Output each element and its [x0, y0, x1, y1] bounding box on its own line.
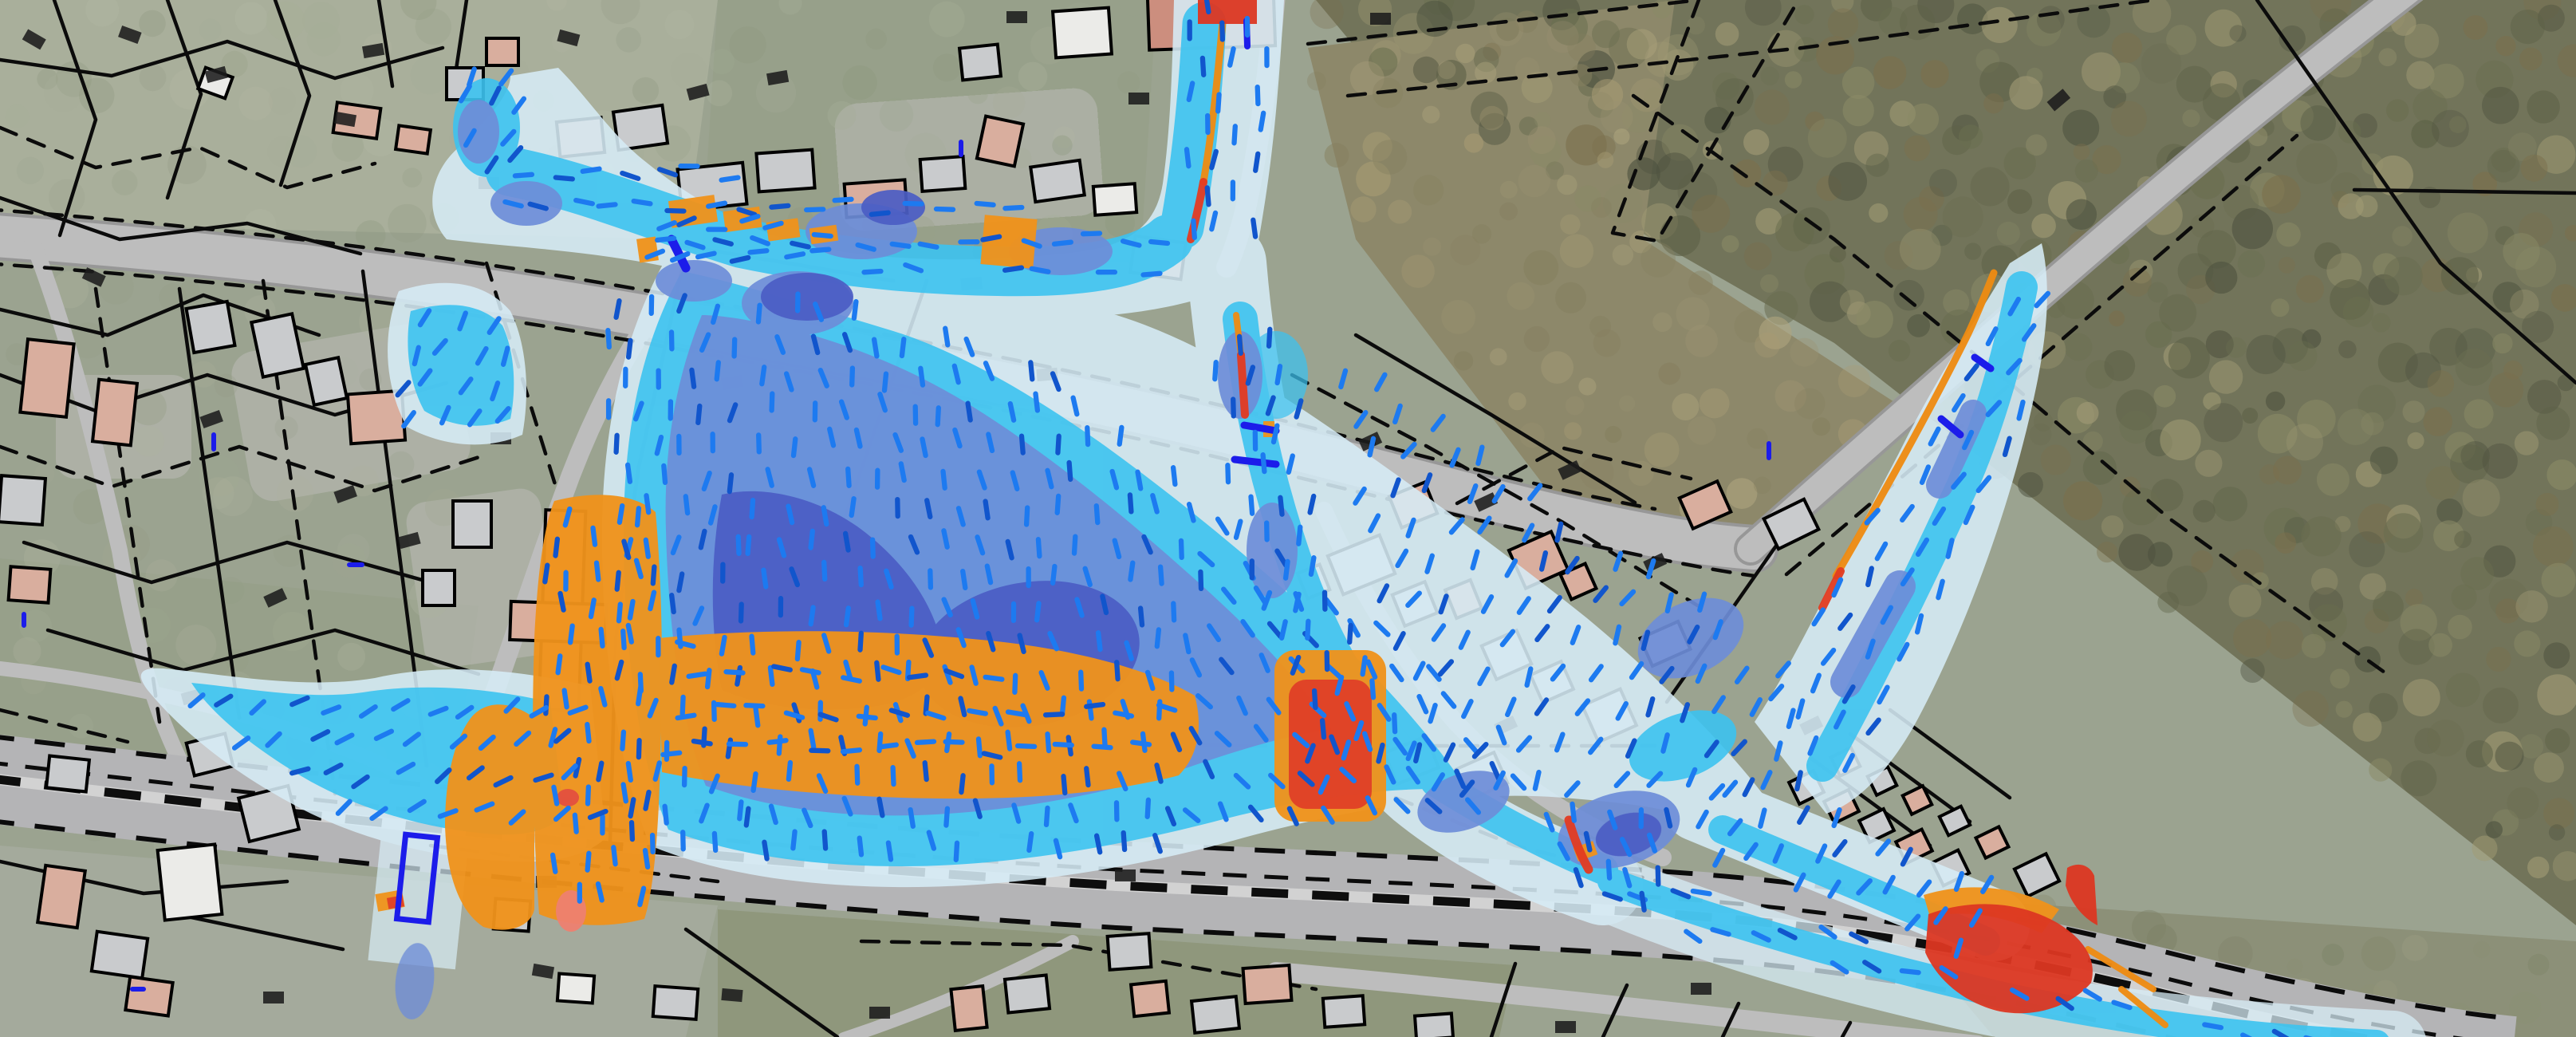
building — [9, 566, 51, 602]
hazard-red-retention-core — [1289, 680, 1372, 809]
building — [920, 156, 966, 191]
building — [158, 844, 223, 920]
building — [453, 501, 491, 547]
building — [959, 45, 1001, 81]
building — [756, 150, 814, 192]
map-canvas[interactable] — [0, 0, 2576, 1037]
building — [1093, 183, 1136, 215]
building — [951, 986, 987, 1031]
building — [125, 976, 172, 1015]
building — [977, 116, 1023, 167]
building — [20, 339, 73, 417]
building — [37, 865, 85, 928]
map-viewport[interactable] — [0, 0, 2576, 1037]
building — [423, 570, 455, 605]
building — [1053, 8, 1112, 58]
building — [557, 974, 594, 1003]
building — [1415, 1013, 1453, 1037]
building — [653, 986, 699, 1019]
building — [187, 302, 235, 353]
building — [1030, 160, 1085, 202]
building — [46, 755, 89, 791]
building — [1108, 933, 1152, 970]
building — [486, 38, 518, 65]
building — [0, 475, 45, 525]
building — [396, 125, 431, 153]
building — [92, 932, 148, 978]
building — [1323, 996, 1365, 1027]
building — [1131, 981, 1169, 1016]
building — [1191, 996, 1239, 1033]
building — [1243, 965, 1292, 1003]
building — [305, 357, 347, 405]
building — [93, 380, 137, 446]
building — [1005, 975, 1050, 1012]
